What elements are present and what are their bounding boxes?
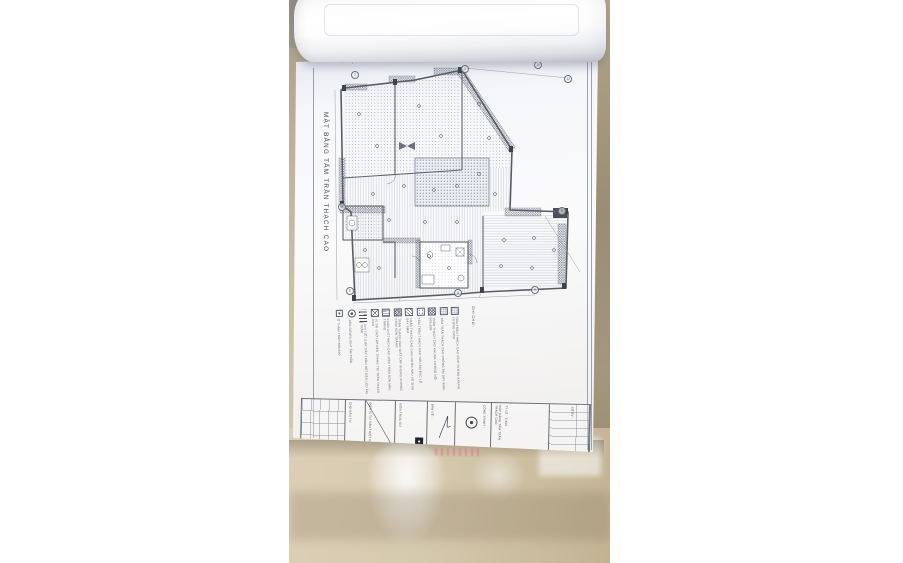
legend-label: PHÀO CHỈ THẠCH CAO VIỀN TRẦN SƠN MÀU TRẮ… <box>382 319 391 395</box>
legend-label: TRẦN THẠCH CAO CHỊU NƯỚC KHU VỆ SINH DÀY… <box>405 318 414 394</box>
title-block-cell: CÔNG TRÌNH : <box>455 402 492 451</box>
grid-bubble: 12 <box>564 75 572 83</box>
legend-label: TẤM TRẦN THẠCH CAO TIÊU ÂM ĐỤC LỖ <box>417 318 422 394</box>
legend-label: Ô THĂM TRẦN 600x600 <box>336 319 341 395</box>
legend-label: ĐÈN DOWNLIGHT ÂM TRẦN <box>348 320 353 396</box>
legend-label: TẤM TRẦN THẠCH CAO VĨNH TƯỜNG KHUNG XƯƠN… <box>451 317 460 393</box>
drawing-name: MẶT BẰNG TẤM TRẦN THẠCH CAO <box>493 405 501 449</box>
grid-bubble-label: 12 <box>566 77 570 81</box>
number-label: SỐ BV : <box>569 407 574 451</box>
legend-item: TRẦN THẠCH CAO CHỊU NƯỚC KHU VỆ SINH DÀY… <box>405 308 416 404</box>
legend-item: TẤM TRẦN THẠCH CAO TIÊU ÂM ĐỤC LỖ <box>416 308 427 404</box>
legend-swatch <box>405 308 413 316</box>
grid-bubble: 10 <box>534 61 542 69</box>
grid-bubble-label: 2 <box>354 73 356 77</box>
page-background: { "sheet": { "title": "MẶT BẰNG TẤM TRẦN… <box>0 0 903 563</box>
legend-label: CHI TIẾT GIẬT CẤP TRẦN HẮT ĐÈN LED ÂM TR… <box>359 324 368 400</box>
legend-item: VỊ TRÍ CHỜ LẮP ĐÈN TRANG TRÍ TRẦN THẠCH … <box>370 309 381 405</box>
grid-bubble-label: 9 <box>534 288 536 292</box>
legend-item: Ô THĂM TRẦN 600x600 <box>336 310 347 406</box>
grid-bubble: 3 <box>461 65 469 73</box>
grid-bubble: D <box>338 203 346 211</box>
legend-swatch <box>439 307 447 315</box>
legend-label: VỊ TRÍ CHỜ LẮP ĐÈN TRANG TRÍ TRẦN THẠCH … <box>371 319 380 395</box>
sheet-title: MẶT BẰNG TẤM TRẦN THẠCH CAO <box>319 112 329 272</box>
grid-bubble-label: E <box>349 289 351 293</box>
project-label: CÔNG TRÌNH : <box>481 405 486 449</box>
grid-bubble-label: 8 <box>457 291 459 295</box>
roll-emboss-line <box>324 4 579 36</box>
sheet-number-table: SỐ BV : <box>549 404 590 453</box>
watermark-smudge <box>435 448 481 457</box>
floor-plan-svg <box>329 54 581 306</box>
sheet-frame-line <box>313 68 314 438</box>
legend-item: TẤM TRẦN THẠCH CAO CHỐNG ẨM DÀY 9MM <box>439 307 450 403</box>
legend-label: TRẦN THẠCH CAO GIẬT CẤP KHUNG XƯƠNG CHÌM… <box>394 318 403 394</box>
legend-swatch <box>428 307 436 315</box>
legend-title: GHI CHÚ : <box>471 306 475 336</box>
legend-label: TẤM TRẦN THẠCH CAO CHỐNG ẨM DÀY 9MM <box>439 317 444 393</box>
paper-roll-curl <box>294 0 606 62</box>
drawing-label: BẢN VẼ : <box>429 404 434 448</box>
grid-bubble: 8 <box>454 289 462 297</box>
sheet-frame-line <box>587 54 588 450</box>
owner-label: CHỦ ĐẦU TƯ <box>347 402 352 446</box>
grid-bubble: 2 <box>351 71 359 79</box>
legend-item: TRẦN THẠCH CAO KHUNG XƯƠNG NỔI 600x600 <box>428 307 439 403</box>
grid-bubble: 9 <box>531 286 539 294</box>
legend-item: PHÀO CHỈ THẠCH CAO VIỀN TRẦN SƠN MÀU TRẮ… <box>382 309 393 405</box>
legend: Ô THĂM TRẦN 600x600 ĐÈN DOWNLIGHT ÂM TRẦ… <box>336 306 488 406</box>
legend-swatch <box>359 309 367 322</box>
legend-item: ĐÈN DOWNLIGHT ÂM TRẦN <box>347 309 358 405</box>
legend-item: CHI TIẾT GIẬT CẤP TRẦN HẮT ĐÈN LED ÂM TR… <box>359 309 370 405</box>
legend-label: TRẦN THẠCH CAO KHUNG XƯƠNG NỔI 600x600 <box>428 317 437 393</box>
signature-scribble <box>435 412 454 442</box>
scale-label: TỶ LỆ : 1/100 <box>503 405 508 449</box>
legend-swatch <box>382 309 390 317</box>
consultant-label: ĐƠN VỊ TƯ VẤN THIẾT KẾ <box>367 402 372 446</box>
legend-swatch <box>416 308 424 316</box>
legend-swatch <box>393 308 401 316</box>
title-block-cell: KIẾN TRÚC SƯ <box>395 401 428 450</box>
company-stamp <box>465 416 477 428</box>
sheet-frame-line <box>591 54 592 450</box>
legend-swatch <box>451 307 459 315</box>
grid-bubble-label: 3 <box>464 67 466 71</box>
architect-label: KIẾN TRÚC SƯ <box>397 403 402 447</box>
legend-swatch <box>370 309 378 317</box>
legend-item: TRẦN THẠCH CAO GIẬT CẤP KHUNG XƯƠNG CHÌM… <box>393 308 404 404</box>
marble-shadow-band <box>289 492 610 540</box>
legend-item: TẤM TRẦN THẠCH CAO VĨNH TƯỜNG KHUNG XƯƠN… <box>451 307 462 403</box>
title-block-cell: MẶT BẰNG TẤM TRẦN THẠCH CAO TỶ LỆ : 1/10… <box>491 403 550 452</box>
grid-bubble-label: B <box>561 209 563 213</box>
photo-of-ceiling-plan: MẶT BẰNG TẤM TRẦN THẠCH CAO <box>289 0 610 563</box>
legend-swatch <box>336 310 343 317</box>
grid-bubble-label: D <box>341 205 343 209</box>
title-block-cell: BẢN VẼ : <box>427 402 456 451</box>
drawing-sheet: MẶT BẰNG TẤM TRẦN THẠCH CAO <box>293 50 598 452</box>
grid-bubble: B <box>558 207 566 215</box>
legend-swatch <box>347 309 355 317</box>
grid-bubble-label: 10 <box>536 63 540 67</box>
grid-bubble: E <box>346 287 354 295</box>
